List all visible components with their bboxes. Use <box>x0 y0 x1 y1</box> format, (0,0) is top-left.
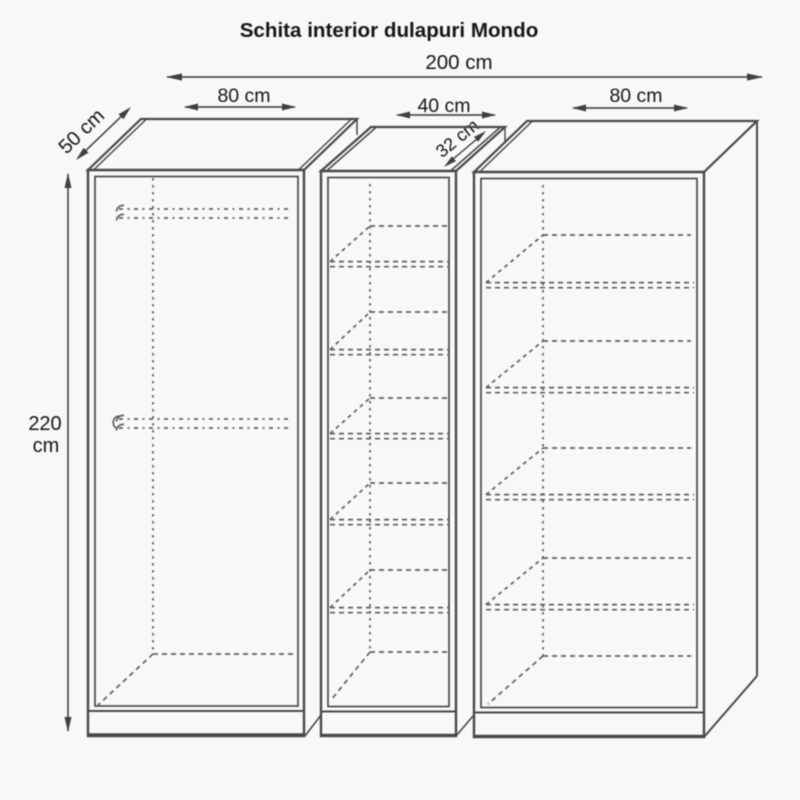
svg-text:40 cm: 40 cm <box>417 95 470 117</box>
svg-text:Schita interior dulapuri Mondo: Schita interior dulapuri Mondo <box>240 19 539 42</box>
svg-text:80 cm: 80 cm <box>217 85 270 107</box>
svg-text:cm: cm <box>33 435 60 457</box>
svg-text:80 cm: 80 cm <box>609 85 662 107</box>
svg-text:220: 220 <box>28 413 61 435</box>
svg-text:200 cm: 200 cm <box>425 51 492 74</box>
